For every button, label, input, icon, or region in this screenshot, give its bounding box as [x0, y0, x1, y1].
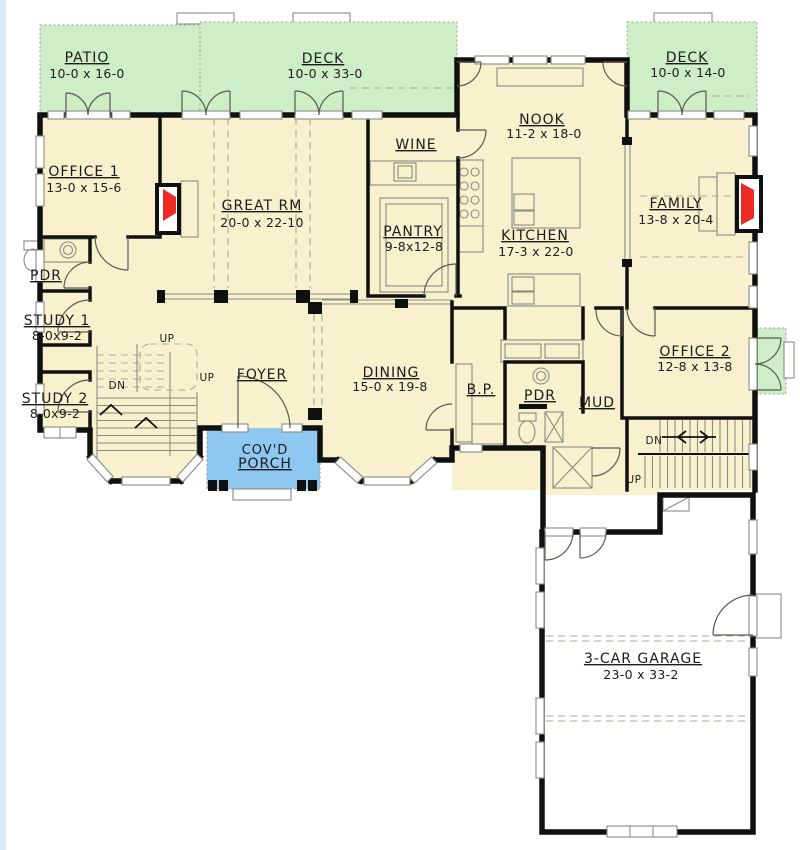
label-office2-dims: 12-8 x 13-8 — [657, 359, 732, 374]
label-family-dims: 13-8 x 20-4 — [638, 212, 713, 227]
label-patio-dims: 10-0 x 16-0 — [49, 66, 124, 81]
fireplace-firebox — [741, 183, 754, 225]
label-up-main-2: UP — [199, 372, 214, 384]
label-dining-dims: 15-0 x 19-8 — [352, 379, 427, 394]
floor-plan-page: PATIO 10-0 x 16-0 DECK 10-0 x 33-0 DECK … — [0, 0, 800, 850]
label-garage-dims: 23-0 x 33-2 — [603, 667, 678, 682]
porch-step — [233, 489, 291, 500]
porch-column — [219, 480, 228, 491]
label-deck-main: DECK — [302, 51, 345, 67]
label-kitchen: KITCHEN — [501, 228, 569, 244]
office2-stoop-step — [784, 342, 794, 378]
label-study2: STUDY 2 — [22, 391, 89, 407]
porch-column — [308, 480, 317, 491]
label-up-main: UP — [159, 333, 174, 345]
label-pantry: PANTRY — [383, 224, 443, 240]
label-kitchen-dims: 17-3 x 22-0 — [498, 244, 573, 259]
label-foyer: FOYER — [237, 367, 287, 383]
label-office2: OFFICE 2 — [659, 344, 730, 360]
label-pdr1: PDR — [30, 268, 62, 284]
label-deck-right-dims: 10-0 x 14-0 — [650, 65, 725, 80]
label-pdr2: PDR — [524, 388, 556, 404]
label-deck-right: DECK — [666, 50, 709, 66]
label-dn-main: DN — [109, 380, 126, 392]
label-patio: PATIO — [65, 50, 110, 66]
label-office1: OFFICE 1 — [48, 164, 119, 180]
porch-column — [208, 480, 217, 491]
label-garage: 3-CAR GARAGE — [584, 651, 702, 667]
label-wine: WINE — [395, 137, 436, 153]
garage-window-bump — [607, 826, 677, 837]
label-office1-dims: 13-0 x 15-6 — [46, 180, 121, 195]
label-study2-dims: 8-0x9-2 — [30, 406, 80, 421]
label-nook-dims: 11-2 x 18-0 — [506, 126, 581, 141]
label-porch-line2: PORCH — [238, 456, 292, 472]
label-pantry-dims: 9-8x12-8 — [385, 239, 444, 254]
label-study1-dims: 8-0x9-2 — [32, 328, 82, 343]
label-mud: MUD — [579, 395, 615, 411]
label-great-room-dims: 20-0 x 22-10 — [220, 215, 304, 230]
porch-column — [297, 480, 306, 491]
label-study1: STUDY 1 — [24, 313, 91, 329]
label-deck-main-dims: 10-0 x 33-0 — [287, 66, 362, 81]
label-dn-mud: DN — [646, 435, 663, 447]
floor-plan-drawing: PATIO 10-0 x 16-0 DECK 10-0 x 33-0 DECK … — [0, 0, 800, 850]
label-family: FAMILY — [649, 196, 702, 212]
label-bp: B.P. — [467, 382, 496, 398]
label-great-room: GREAT RM — [222, 198, 303, 214]
label-up-mud: UP — [626, 474, 641, 486]
